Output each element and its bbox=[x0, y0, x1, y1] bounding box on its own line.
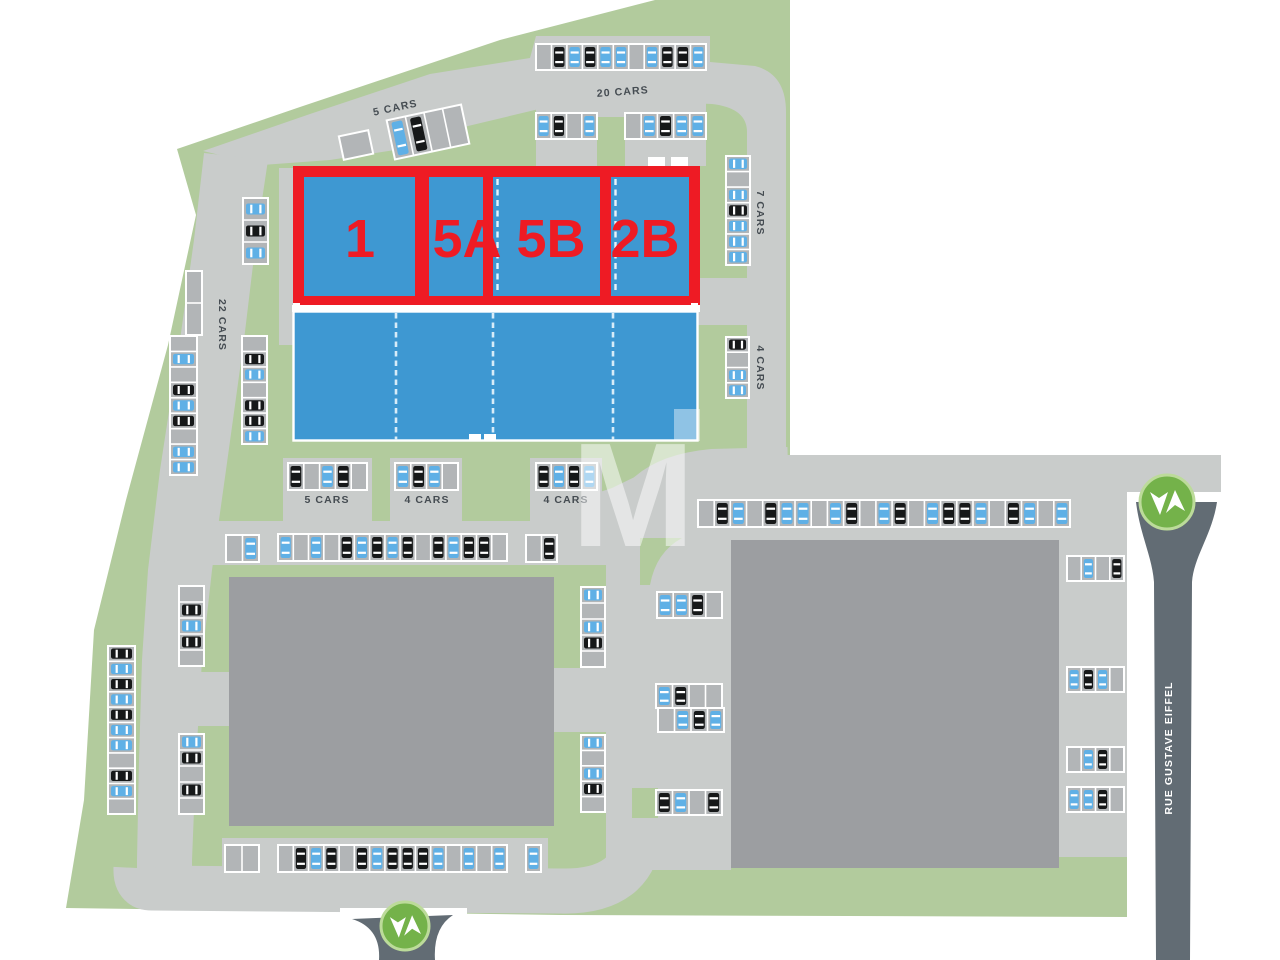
svg-text:2B: 2B bbox=[610, 209, 679, 269]
svg-text:4 CARS: 4 CARS bbox=[754, 345, 766, 390]
svg-text:5B: 5B bbox=[516, 209, 585, 269]
svg-text:7 CARS: 7 CARS bbox=[754, 190, 766, 235]
svg-text:22 CARS: 22 CARS bbox=[216, 299, 228, 351]
svg-text:RUE GUSTAVE EIFFEL: RUE GUSTAVE EIFFEL bbox=[1163, 681, 1175, 814]
svg-text:1: 1 bbox=[345, 209, 375, 269]
svg-text:5 CARS: 5 CARS bbox=[304, 494, 349, 506]
svg-text:4 CARS: 4 CARS bbox=[404, 494, 449, 506]
svg-text:5A: 5A bbox=[432, 209, 501, 269]
